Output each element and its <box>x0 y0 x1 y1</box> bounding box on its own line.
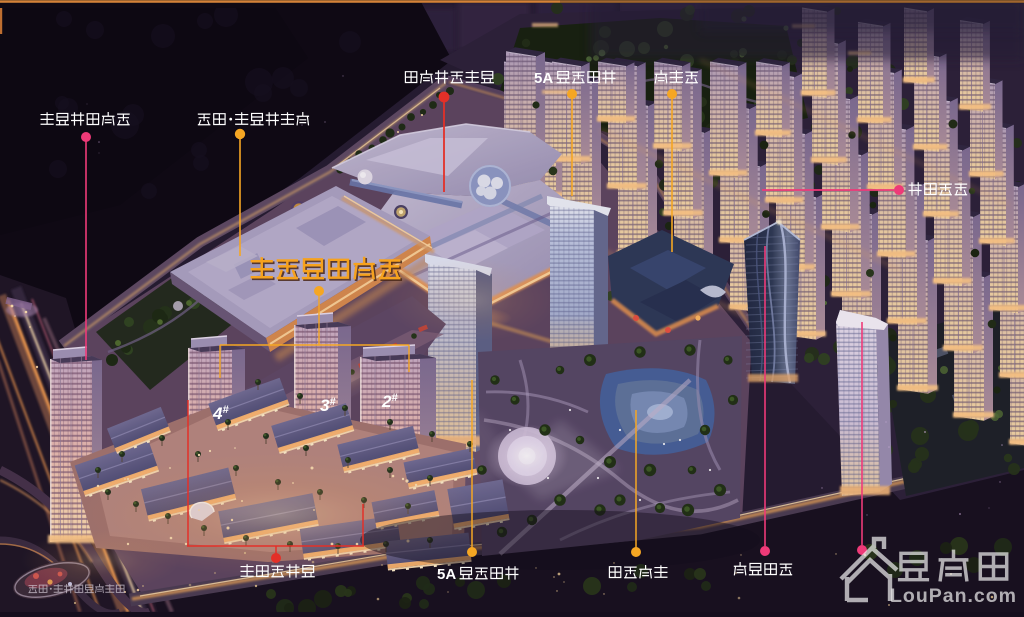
svg-text:LouPan.com: LouPan.com <box>890 585 1017 607</box>
svg-text:5A: 5A <box>437 566 456 583</box>
svg-text:5A: 5A <box>534 70 553 87</box>
